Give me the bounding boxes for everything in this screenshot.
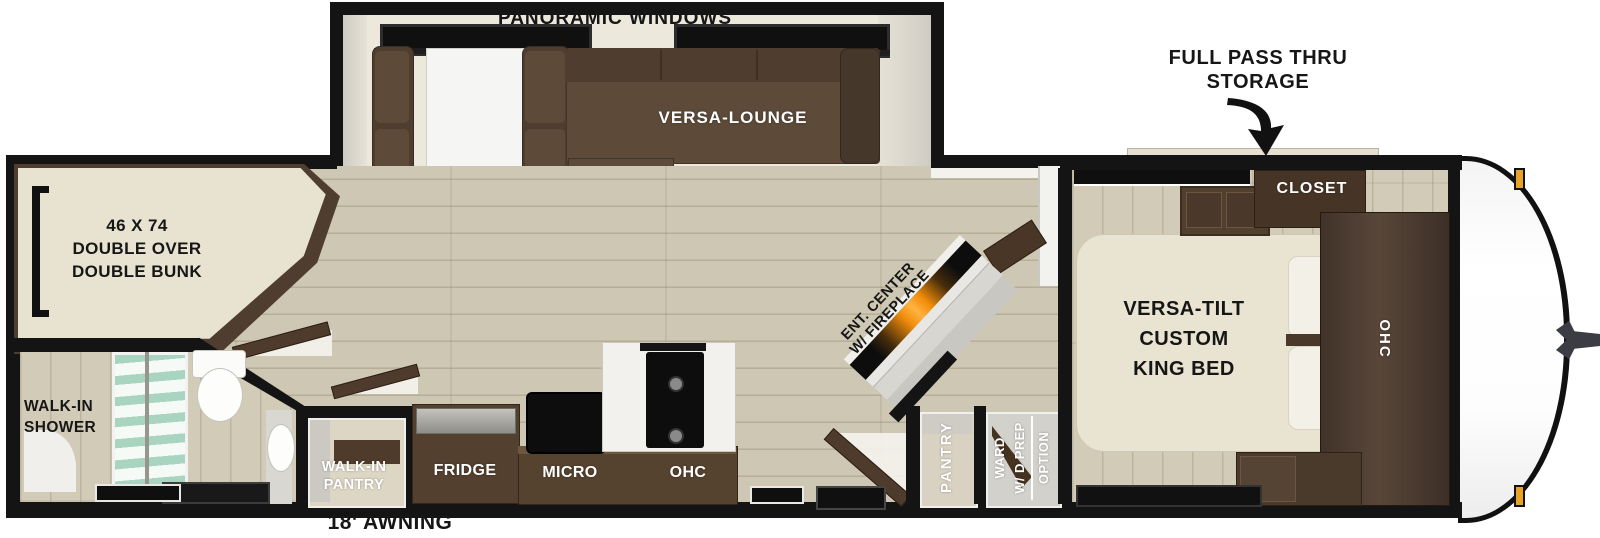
wall-pantry-left [906,406,920,504]
microwave-icon [526,392,606,454]
sofa-cushion-seam [660,50,662,80]
cooktop-knob [668,376,684,392]
bunk-ladder-icon [32,188,40,316]
bunk-ladder-icon [32,310,49,317]
walkin-pantry-line1: WALK-IN [306,458,402,476]
micro-label: MICRO [528,464,612,483]
rv-floorplan: PANORAMIC WINDOWS VERSA-LOUNGE 46 X 74 D… [0,0,1600,538]
slideout-wall-shade [343,15,367,168]
bedroom-mat [1076,485,1262,507]
entry-step [816,486,886,510]
bedroom-ohc-label: OHC [1377,294,1393,384]
dinette-cushion [525,51,565,123]
storage-label-line2: STORAGE [1148,70,1368,94]
closet-label: CLOSET [1264,180,1360,199]
wall-bath-top [6,338,200,352]
ward-line1: WARD [990,416,1010,500]
bath-sink-icon [267,424,295,472]
bed-label-line1: VERSA-TILT [1086,294,1282,324]
fridge-top [416,408,516,434]
wall-pantry-right [974,406,986,504]
fridge-label: FRIDGE [412,462,518,481]
front-cap [1458,156,1570,523]
bunk-label-line2: DOUBLE OVER [48,237,226,260]
panoramic-windows-label: PANORAMIC WINDOWS [440,8,790,30]
range-hood [640,343,706,351]
bed-label-line2: CUSTOM [1086,324,1282,354]
bunk-label-line3: DOUBLE BUNK [48,260,226,283]
window-icon [1074,170,1250,186]
cooktop-knob [668,428,684,444]
bunk-label-line1: 46 X 74 [48,214,226,237]
hall-wall-column [1038,166,1060,286]
dinette-cushion [375,51,409,123]
bunk-ladder-icon [32,186,49,193]
storage-arrow-icon [1224,94,1292,158]
sofa-armrest [840,48,880,164]
pantry-label: PANTRY [938,412,956,502]
kitchen-ohc-label: OHC [646,464,730,483]
shower-label-line1: WALK-IN [24,396,136,417]
ward-line3: OPTION [1031,416,1054,500]
toilet-icon [197,368,243,422]
sofa-back-cushions [566,48,878,82]
overbed-cabinet-door [1186,192,1222,228]
marker-light-icon [1514,168,1525,190]
window-icon [750,486,804,504]
ward-label: WARD W/ D PREP OPTION [990,416,1056,500]
full-pass-thru-storage-label: FULL PASS THRU STORAGE [1148,46,1368,94]
sofa-cushion-seam [756,50,758,80]
marker-light-icon [1514,485,1525,507]
bed-label-line3: KING BED [1086,354,1282,384]
walk-in-shower-label: WALK-IN SHOWER [24,396,136,438]
wall-bedroom-left [1058,168,1072,504]
shower-label-line2: SHOWER [24,417,136,438]
awning-label: 18' AWNING [298,511,482,536]
versa-lounge-label: VERSA-LOUNGE [640,108,826,128]
king-bed-label: VERSA-TILT CUSTOM KING BED [1086,294,1282,384]
storage-label-line1: FULL PASS THRU [1148,46,1368,70]
ward-line2: W/ D PREP [1010,416,1030,500]
walkin-pantry-line2: PANTRY [306,476,402,494]
walk-in-pantry-label: WALK-IN PANTRY [306,458,402,494]
window-icon [95,484,181,502]
bunk-label: 46 X 74 DOUBLE OVER DOUBLE BUNK [48,214,226,283]
shower-rod [145,352,149,496]
